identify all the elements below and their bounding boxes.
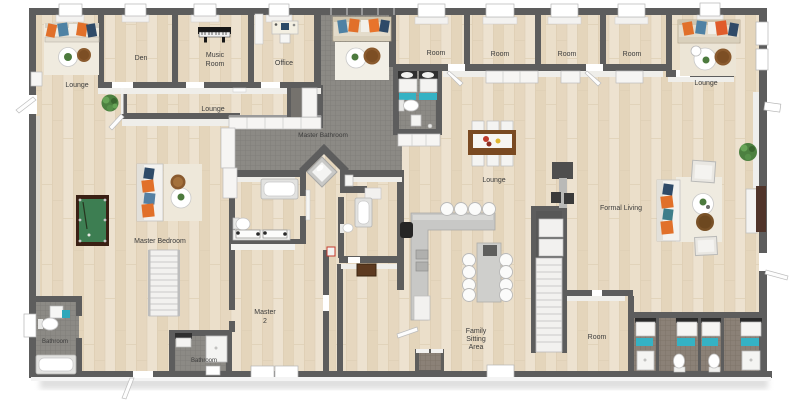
svg-text:Room: Room [491, 51, 510, 58]
svg-text:Master Bathroom: Master Bathroom [298, 132, 348, 139]
svg-text:Master: Master [254, 309, 276, 316]
svg-text:Office: Office [275, 60, 293, 67]
svg-text:Den: Den [135, 55, 148, 62]
svg-text:Lounge: Lounge [65, 82, 88, 89]
svg-text:Music: Music [206, 52, 225, 59]
svg-text:Lounge: Lounge [694, 80, 717, 87]
svg-text:Lounge: Lounge [201, 106, 224, 113]
svg-text:Room: Room [206, 61, 225, 68]
svg-text:Bathroom: Bathroom [191, 358, 217, 364]
svg-text:Room: Room [558, 51, 577, 58]
svg-text:Bathroom: Bathroom [42, 339, 68, 345]
svg-text:Room: Room [623, 51, 642, 58]
svg-text:Master Bedroom: Master Bedroom [134, 238, 186, 245]
svg-text:Lounge: Lounge [482, 177, 505, 184]
svg-text:Room: Room [427, 50, 446, 57]
svg-text:Sitting: Sitting [466, 336, 486, 343]
svg-text:Room: Room [588, 334, 607, 341]
svg-text:Formal Living: Formal Living [600, 205, 642, 212]
svg-text:Area: Area [469, 344, 484, 351]
svg-text:2: 2 [263, 318, 267, 325]
svg-text:Family: Family [466, 328, 487, 335]
